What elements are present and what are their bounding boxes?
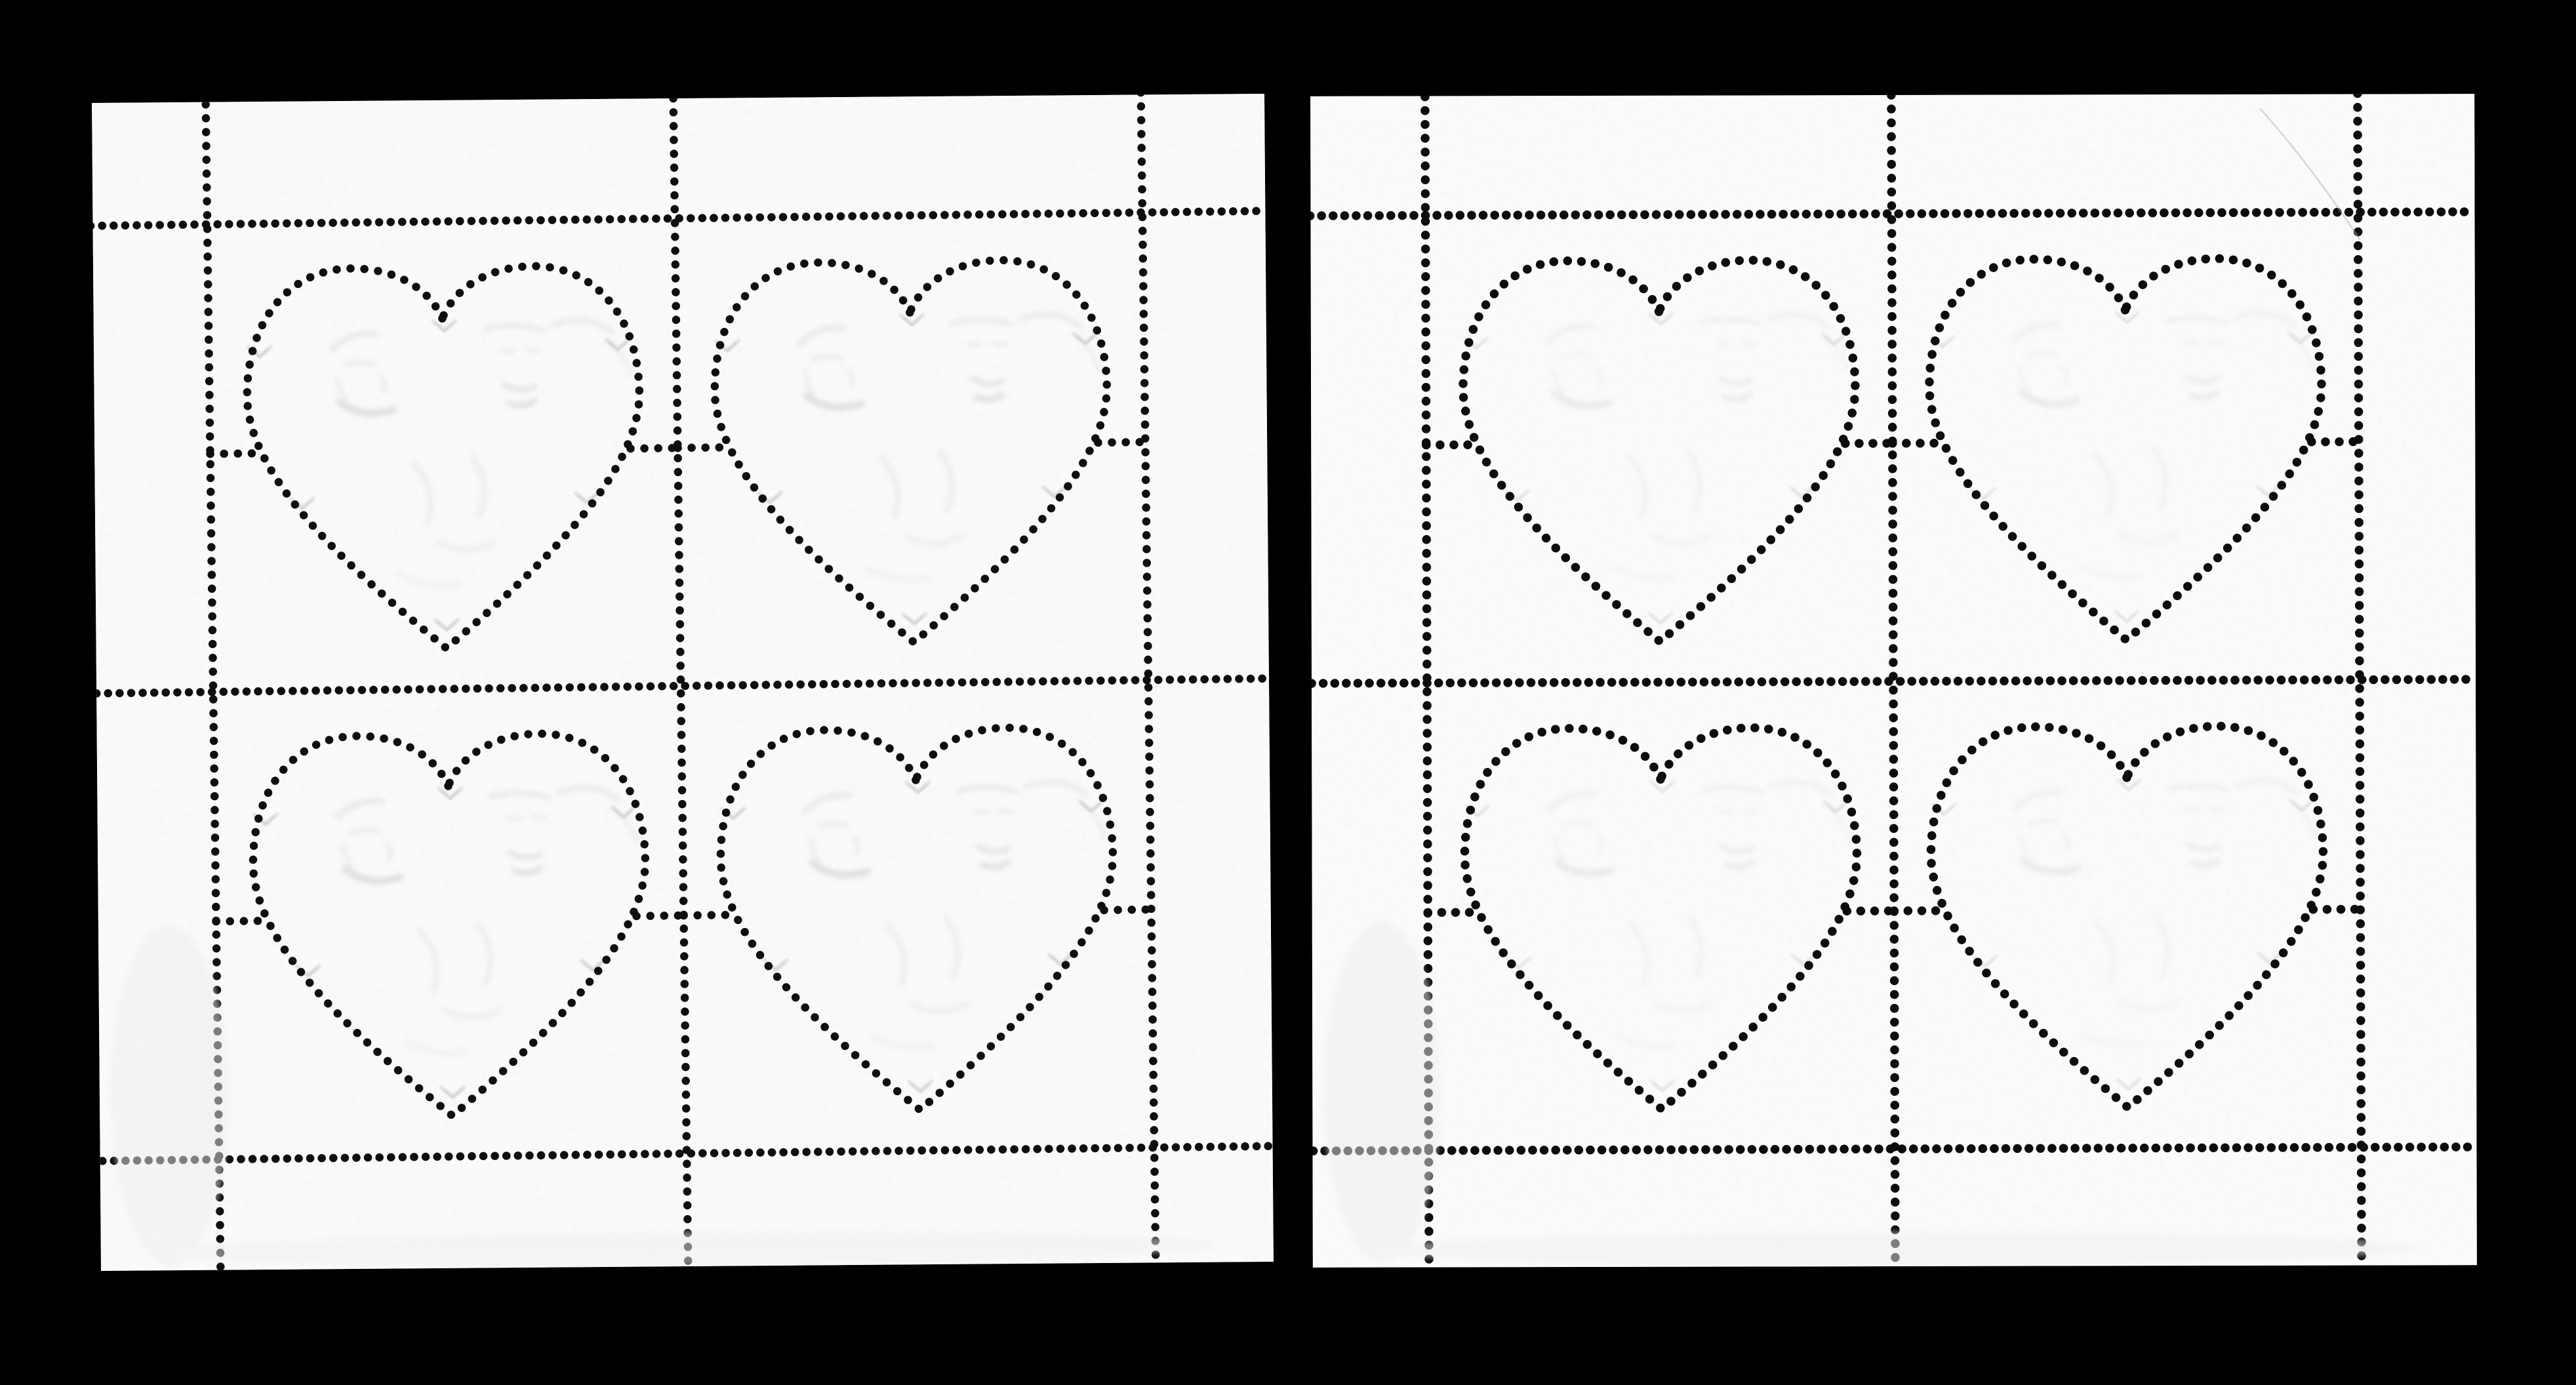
sheet-right-art [1310, 94, 2477, 1268]
emboss-stroke [501, 349, 514, 351]
emboss-stroke [1742, 343, 1756, 345]
emboss-stroke [2210, 809, 2223, 811]
emboss-stroke [1718, 343, 1731, 345]
edge-shadow [1323, 921, 1441, 1262]
emboss-stroke [975, 811, 988, 813]
emboss-stroke [2184, 341, 2197, 343]
emboss-stroke [2209, 341, 2222, 343]
emboss-stroke [526, 349, 539, 351]
scanner-background: Scan of two blank white sheets of four h… [0, 0, 2576, 1385]
stamp-sheet-left [92, 94, 1274, 1271]
emboss-stroke [2185, 809, 2198, 811]
emboss-stroke [1719, 811, 1732, 813]
emboss-stroke [1744, 811, 1757, 813]
emboss-stroke [994, 343, 1007, 345]
emboss-stroke [999, 811, 1013, 813]
emboss-stroke [507, 816, 520, 818]
stamp-sheet-right [1310, 94, 2477, 1268]
emboss-stroke [969, 343, 982, 345]
emboss-stroke [532, 816, 545, 818]
sheet-left-art [92, 94, 1274, 1271]
